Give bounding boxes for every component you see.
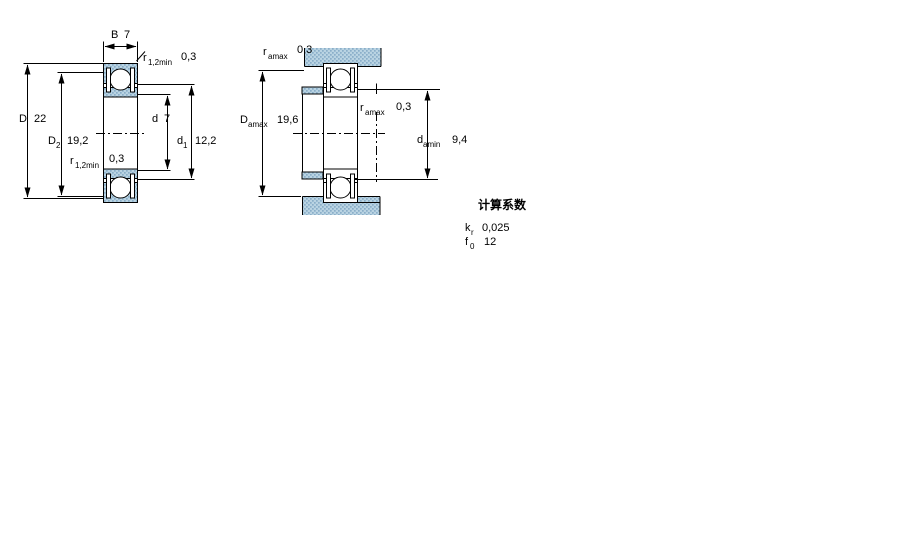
dim-Da-label: D <box>240 114 248 126</box>
factor-f0-label: f <box>465 236 469 248</box>
left-shield-top-right <box>131 68 135 92</box>
right-shield-bottom-right <box>351 174 355 198</box>
left-bearing <box>96 64 145 203</box>
dim-ra-mid-value: 0,3 <box>396 101 411 113</box>
dim-ra-top-sub: amax <box>268 52 288 61</box>
dim-r-top-label: r <box>143 52 147 64</box>
dim-B-value: 7 <box>124 29 130 41</box>
factor-kr-value: 0,025 <box>482 222 510 234</box>
calculation-factors: 计算系数 k r 0,025 f 0 12 <box>465 197 527 251</box>
dim-r-top-sub: 1,2min <box>148 58 172 67</box>
shaft-shoulder-top <box>302 87 323 94</box>
bearing-drawing-page: B 7 r 1,2min 0,3 D 22 D 2 19,2 d 7 d 1 1… <box>0 0 900 560</box>
dim-B-label: B <box>111 29 118 41</box>
dim-Da-sub: amax <box>248 120 268 129</box>
dim-da-value: 9,4 <box>452 134 467 146</box>
dim-D-value: 22 <box>34 113 46 125</box>
dim-d1-sub: 1 <box>183 141 188 150</box>
dim-d-value: 7 <box>164 113 170 125</box>
dim-d1-value: 12,2 <box>195 135 216 147</box>
right-diagram: r amax 0,3 D amax 19,6 r amax 0,3 d amin… <box>240 44 467 215</box>
dim-Da-value: 19,6 <box>277 114 298 126</box>
right-ball-top <box>330 69 351 90</box>
right-shield-top-left <box>327 68 331 92</box>
left-diagram: B 7 r 1,2min 0,3 D 22 D 2 19,2 d 7 d 1 1… <box>19 29 216 203</box>
dim-D2-label: D <box>48 135 56 147</box>
left-shield-top-left <box>107 68 111 92</box>
dim-D-label: D <box>19 113 27 125</box>
dim-da-sub: amin <box>423 140 440 149</box>
right-shield-top-right <box>351 68 355 92</box>
factor-f0-value: 12 <box>484 236 496 248</box>
dim-ra-mid-label: r <box>360 102 364 114</box>
left-shield-bottom-right <box>131 174 135 198</box>
left-ball-bottom <box>110 177 131 198</box>
dim-ra-mid-sub: amax <box>365 108 385 117</box>
factor-f0-sub: 0 <box>470 242 475 251</box>
dim-D2-value: 19,2 <box>67 135 88 147</box>
dim-D2-sub: 2 <box>56 141 61 150</box>
dim-d-label: d <box>152 113 158 125</box>
shaft-shoulder-bottom <box>302 172 323 179</box>
left-shield-bottom-left <box>107 174 111 198</box>
right-shield-bottom-left <box>327 174 331 198</box>
dim-r-top-value: 0,3 <box>181 51 196 63</box>
factor-kr-sub: r <box>471 228 474 237</box>
right-ball-bottom <box>330 177 351 198</box>
bearing-drawing-canvas: B 7 r 1,2min 0,3 D 22 D 2 19,2 d 7 d 1 1… <box>0 0 900 560</box>
dim-ra-top-label: r <box>263 46 267 58</box>
dim-r-bottom-value: 0,3 <box>109 153 124 165</box>
calculation-factors-heading: 计算系数 <box>478 197 527 212</box>
dim-r-bottom-sub: 1,2min <box>75 161 99 170</box>
left-ball-top <box>110 69 131 90</box>
dim-ra-top-value: 0,3 <box>297 44 312 56</box>
dim-r-bottom-label: r <box>70 155 74 167</box>
